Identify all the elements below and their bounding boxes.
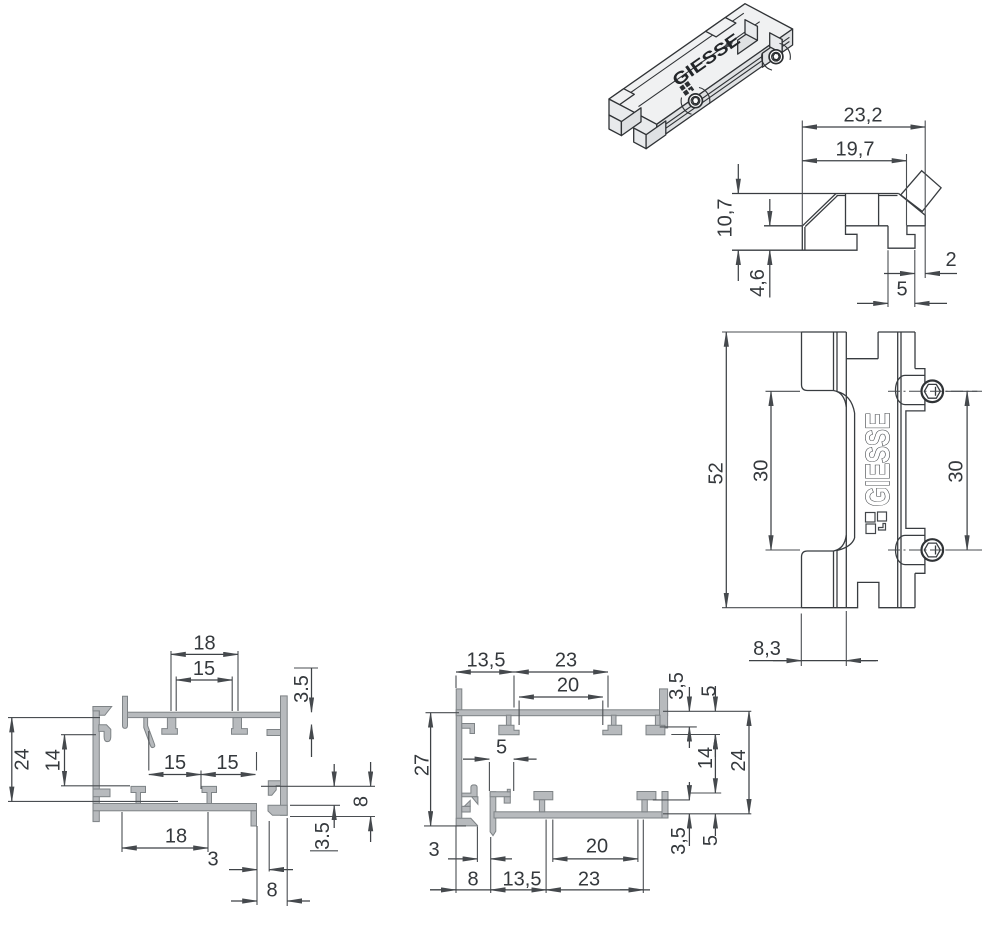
svg-text:5: 5 bbox=[496, 737, 507, 759]
svg-text:8: 8 bbox=[467, 869, 478, 891]
svg-text:23: 23 bbox=[578, 869, 600, 891]
svg-text:14: 14 bbox=[43, 749, 65, 771]
svg-text:15: 15 bbox=[216, 752, 238, 774]
svg-text:30: 30 bbox=[946, 460, 968, 482]
svg-text:3,5: 3,5 bbox=[668, 827, 690, 855]
svg-text:8: 8 bbox=[266, 880, 277, 902]
svg-text:GIESSE: GIESSE bbox=[859, 413, 896, 507]
svg-text:14: 14 bbox=[695, 747, 717, 769]
svg-text:5: 5 bbox=[699, 685, 721, 696]
svg-text:15: 15 bbox=[193, 658, 215, 680]
svg-text:20: 20 bbox=[586, 836, 608, 858]
svg-text:18: 18 bbox=[165, 826, 187, 848]
svg-text:3.5: 3.5 bbox=[312, 822, 334, 850]
svg-text:27: 27 bbox=[412, 754, 434, 776]
svg-text:5: 5 bbox=[700, 835, 722, 846]
svg-text:8: 8 bbox=[351, 796, 373, 807]
svg-text:3: 3 bbox=[428, 839, 439, 861]
svg-text:24: 24 bbox=[728, 749, 750, 771]
svg-text:15: 15 bbox=[164, 752, 186, 774]
svg-text:52: 52 bbox=[706, 462, 728, 484]
svg-text:19,7: 19,7 bbox=[836, 139, 875, 161]
svg-text:13,5: 13,5 bbox=[467, 650, 506, 672]
svg-text:10,7: 10,7 bbox=[715, 199, 737, 238]
svg-text:3.5: 3.5 bbox=[291, 675, 313, 703]
svg-text:4,6: 4,6 bbox=[747, 269, 769, 297]
svg-text:3: 3 bbox=[207, 849, 218, 871]
svg-text:3,5: 3,5 bbox=[666, 672, 688, 700]
svg-text:2: 2 bbox=[945, 249, 956, 271]
svg-text:5: 5 bbox=[896, 279, 907, 301]
svg-text:30: 30 bbox=[751, 460, 773, 482]
svg-text:23: 23 bbox=[555, 650, 577, 672]
svg-text:23,2: 23,2 bbox=[844, 105, 883, 127]
svg-text:8,3: 8,3 bbox=[753, 638, 781, 660]
svg-text:20: 20 bbox=[557, 675, 579, 697]
svg-text:13,5: 13,5 bbox=[503, 869, 542, 891]
svg-text:24: 24 bbox=[12, 748, 34, 770]
svg-text:18: 18 bbox=[193, 633, 215, 655]
